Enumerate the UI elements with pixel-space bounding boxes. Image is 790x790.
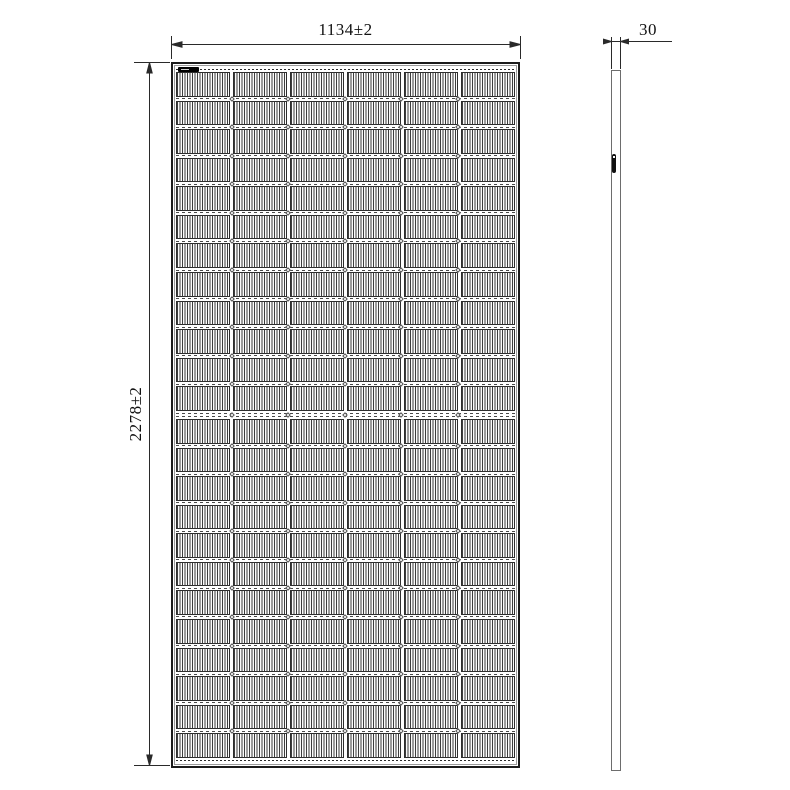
solar-cell	[290, 562, 344, 587]
ribbon-node	[229, 728, 235, 734]
cell-row	[176, 101, 515, 126]
ribbon-node	[229, 586, 235, 592]
ribbon-node	[399, 267, 405, 273]
solar-cell	[461, 676, 515, 701]
solar-cell	[347, 533, 401, 558]
ribbon-node	[455, 153, 461, 159]
ribbon-node	[342, 586, 348, 592]
solar-cell	[404, 386, 458, 411]
solar-cell	[461, 648, 515, 673]
solar-cell	[290, 448, 344, 473]
ribbon-node	[455, 96, 461, 102]
solar-cell	[290, 301, 344, 326]
solar-cell	[176, 648, 230, 673]
ribbon-node	[399, 700, 405, 706]
ribbon-node	[286, 728, 292, 734]
solar-cell	[290, 386, 344, 411]
solar-cell	[347, 186, 401, 211]
ribbon-node	[455, 181, 461, 187]
ribbon-node	[286, 267, 292, 273]
cell-row	[176, 158, 515, 183]
ribbon-node	[399, 153, 405, 159]
solar-cell	[233, 243, 287, 268]
ribbon-node	[455, 557, 461, 563]
ribbon-node	[286, 412, 292, 418]
solar-cell	[404, 301, 458, 326]
ribbon-node	[286, 353, 292, 359]
solar-cell	[290, 619, 344, 644]
solar-cell	[176, 272, 230, 297]
ribbon-node	[342, 557, 348, 563]
solar-cell	[176, 215, 230, 240]
solar-cell	[461, 590, 515, 615]
solar-cell	[347, 619, 401, 644]
solar-cell	[461, 101, 515, 126]
ribbon-node	[342, 210, 348, 216]
solar-cell	[461, 419, 515, 444]
ribbon-node	[286, 671, 292, 677]
thickness-dimension-label: 30	[628, 20, 668, 40]
solar-cell	[176, 301, 230, 326]
solar-cell	[176, 129, 230, 154]
cell-row-gap	[176, 382, 515, 386]
ribbon-node	[455, 528, 461, 534]
solar-cell	[404, 476, 458, 501]
solar-cell	[176, 505, 230, 530]
solar-cell	[404, 648, 458, 673]
cell-row	[176, 243, 515, 268]
solar-cell	[461, 533, 515, 558]
ribbon-node	[399, 728, 405, 734]
ribbon-node	[229, 353, 235, 359]
cell-row	[176, 386, 515, 411]
solar-cell	[347, 386, 401, 411]
solar-cell	[347, 448, 401, 473]
cell-row-gap	[176, 615, 515, 619]
ribbon-node	[342, 614, 348, 620]
solar-cell	[290, 329, 344, 354]
ribbon-node	[399, 557, 405, 563]
solar-cell	[404, 272, 458, 297]
ribbon-node	[455, 267, 461, 273]
solar-cell	[290, 158, 344, 183]
solar-cell	[176, 158, 230, 183]
cell-row-gap	[176, 558, 515, 562]
cell-row-gap	[176, 354, 515, 358]
solar-cell	[233, 301, 287, 326]
ribbon-node	[229, 96, 235, 102]
ribbon-node	[342, 296, 348, 302]
solar-cell	[461, 72, 515, 97]
solar-cell	[290, 186, 344, 211]
cell-row	[176, 448, 515, 473]
solar-cell	[233, 533, 287, 558]
ribbon-node	[455, 728, 461, 734]
ribbon-node	[455, 471, 461, 477]
ribbon-node	[342, 443, 348, 449]
ribbon-node	[229, 239, 235, 245]
solar-cell	[404, 72, 458, 97]
serial-barcode-label	[178, 67, 199, 72]
solar-cell	[290, 676, 344, 701]
cell-row	[176, 72, 515, 97]
technical-drawing-canvas: 1134±2 2278±2 30	[0, 0, 790, 790]
solar-cell	[233, 448, 287, 473]
ribbon-node	[399, 181, 405, 187]
ribbon-node	[286, 471, 292, 477]
solar-cell	[404, 101, 458, 126]
ribbon-node	[399, 586, 405, 592]
ribbon-node	[342, 353, 348, 359]
solar-cell	[233, 386, 287, 411]
cell-row	[176, 648, 515, 673]
ribbon-node	[455, 382, 461, 388]
ribbon-node	[342, 153, 348, 159]
bottom-busbar-strip	[176, 758, 515, 763]
top-busbar-strip	[176, 67, 515, 72]
solar-cell	[176, 676, 230, 701]
ribbon-node	[286, 210, 292, 216]
ribbon-node	[229, 324, 235, 330]
cell-row-gap	[176, 586, 515, 590]
ribbon-node	[286, 643, 292, 649]
ribbon-node	[229, 443, 235, 449]
cell-row-gap	[176, 644, 515, 648]
ribbon-node	[229, 153, 235, 159]
solar-cell	[404, 329, 458, 354]
ribbon-node	[399, 528, 405, 534]
solar-cell	[233, 272, 287, 297]
solar-cell	[347, 272, 401, 297]
ribbon-node	[286, 296, 292, 302]
ribbon-node	[455, 239, 461, 245]
solar-cell	[461, 505, 515, 530]
solar-cell	[233, 619, 287, 644]
solar-cell	[233, 101, 287, 126]
cell-row	[176, 419, 515, 444]
solar-cell	[290, 215, 344, 240]
solar-cell	[290, 590, 344, 615]
solar-cell	[176, 476, 230, 501]
junction-box-mark	[612, 154, 616, 173]
solar-cell	[176, 533, 230, 558]
solar-cell	[290, 533, 344, 558]
ribbon-node	[286, 614, 292, 620]
solar-cell	[290, 476, 344, 501]
solar-cell	[347, 158, 401, 183]
ribbon-node	[399, 412, 405, 418]
solar-cell	[404, 158, 458, 183]
solar-cell	[347, 590, 401, 615]
ribbon-node	[399, 671, 405, 677]
center-row-gap	[176, 411, 515, 419]
ribbon-node	[399, 324, 405, 330]
solar-cell	[233, 590, 287, 615]
cell-row-gap	[176, 125, 515, 129]
ribbon-node	[399, 614, 405, 620]
solar-cell	[290, 705, 344, 730]
cell-row	[176, 562, 515, 587]
ribbon-node	[286, 239, 292, 245]
solar-cell	[233, 129, 287, 154]
ribbon-node	[229, 643, 235, 649]
ribbon-node	[286, 153, 292, 159]
cell-row-gap	[176, 729, 515, 733]
ribbon-node	[455, 296, 461, 302]
solar-cell	[290, 72, 344, 97]
solar-cell	[347, 301, 401, 326]
solar-cell	[347, 358, 401, 383]
ribbon-node	[455, 614, 461, 620]
cell-grid	[176, 72, 515, 758]
solar-cell	[404, 590, 458, 615]
ribbon-node	[399, 443, 405, 449]
cell-row-gap	[176, 239, 515, 243]
ribbon-node	[229, 267, 235, 273]
solar-cell	[347, 476, 401, 501]
ribbon-node	[342, 382, 348, 388]
solar-cell	[347, 733, 401, 758]
solar-cell	[404, 358, 458, 383]
solar-cell	[404, 705, 458, 730]
solar-cell	[176, 386, 230, 411]
ribbon-node	[229, 296, 235, 302]
solar-cell	[233, 329, 287, 354]
ribbon-node	[342, 96, 348, 102]
solar-cell	[347, 648, 401, 673]
solar-cell	[461, 733, 515, 758]
ribbon-node	[399, 296, 405, 302]
solar-cell	[404, 243, 458, 268]
solar-cell	[233, 505, 287, 530]
solar-cell	[461, 358, 515, 383]
ribbon-node	[342, 412, 348, 418]
solar-cell	[347, 676, 401, 701]
cell-row	[176, 505, 515, 530]
solar-cell	[290, 358, 344, 383]
ribbon-node	[286, 586, 292, 592]
solar-cell	[176, 562, 230, 587]
ribbon-node	[455, 412, 461, 418]
cell-row-gap	[176, 529, 515, 533]
ribbon-node	[286, 557, 292, 563]
ribbon-node	[229, 471, 235, 477]
ribbon-node	[342, 500, 348, 506]
ribbon-node	[342, 700, 348, 706]
cell-row	[176, 476, 515, 501]
ribbon-node	[342, 728, 348, 734]
solar-cell	[404, 619, 458, 644]
solar-cell	[347, 72, 401, 97]
solar-cell	[347, 129, 401, 154]
ribbon-node	[229, 500, 235, 506]
ribbon-node	[286, 382, 292, 388]
solar-cell	[233, 158, 287, 183]
cell-row	[176, 215, 515, 240]
solar-cell	[176, 733, 230, 758]
solar-cell	[233, 648, 287, 673]
solar-cell	[347, 419, 401, 444]
cell-row	[176, 358, 515, 383]
ribbon-node	[455, 700, 461, 706]
ribbon-node	[342, 324, 348, 330]
solar-cell	[233, 419, 287, 444]
solar-cell	[404, 733, 458, 758]
solar-cell	[176, 619, 230, 644]
solar-cell	[404, 533, 458, 558]
ribbon-node	[342, 528, 348, 534]
cell-row-gap	[176, 501, 515, 505]
ribbon-node	[229, 210, 235, 216]
solar-cell	[176, 358, 230, 383]
solar-cell	[290, 648, 344, 673]
cell-row-gap	[176, 472, 515, 476]
cell-row	[176, 329, 515, 354]
solar-cell	[461, 158, 515, 183]
ribbon-node	[286, 443, 292, 449]
ribbon-node	[229, 557, 235, 563]
cell-row	[176, 590, 515, 615]
solar-cell	[461, 619, 515, 644]
solar-cell	[290, 129, 344, 154]
solar-cell	[404, 676, 458, 701]
ribbon-node	[399, 210, 405, 216]
cell-row	[176, 129, 515, 154]
cell-row	[176, 619, 515, 644]
solar-cell	[404, 505, 458, 530]
ribbon-node	[399, 643, 405, 649]
ribbon-node	[342, 239, 348, 245]
ribbon-node	[286, 528, 292, 534]
cell-row-gap	[176, 444, 515, 448]
solar-cell	[404, 215, 458, 240]
cell-row	[176, 186, 515, 211]
solar-cell	[461, 448, 515, 473]
ribbon-node	[455, 353, 461, 359]
solar-cell	[233, 72, 287, 97]
ribbon-node	[399, 124, 405, 130]
cell-row-gap	[176, 211, 515, 215]
solar-cell	[404, 419, 458, 444]
solar-cell	[233, 733, 287, 758]
solar-cell	[461, 129, 515, 154]
ribbon-node	[399, 96, 405, 102]
ribbon-node	[229, 671, 235, 677]
ribbon-node	[399, 382, 405, 388]
ribbon-node	[399, 471, 405, 477]
ribbon-node	[342, 124, 348, 130]
solar-cell	[461, 272, 515, 297]
solar-cell	[461, 186, 515, 211]
height-dimension-label: 2278±2	[126, 387, 146, 442]
ribbon-node	[342, 471, 348, 477]
solar-cell	[461, 243, 515, 268]
solar-cell	[233, 358, 287, 383]
solar-cell	[404, 186, 458, 211]
ribbon-node	[455, 210, 461, 216]
ribbon-node	[229, 124, 235, 130]
solar-cell	[347, 562, 401, 587]
ribbon-node	[455, 643, 461, 649]
cell-row-gap	[176, 297, 515, 301]
solar-cell	[176, 243, 230, 268]
solar-cell	[176, 329, 230, 354]
cell-row-gap	[176, 325, 515, 329]
solar-cell	[176, 448, 230, 473]
cell-row-gap	[176, 182, 515, 186]
solar-cell	[461, 301, 515, 326]
solar-panel-front-view	[171, 62, 520, 768]
solar-cell	[404, 562, 458, 587]
width-dimension-label: 1134±2	[171, 20, 520, 40]
solar-cell	[233, 676, 287, 701]
ribbon-node	[455, 324, 461, 330]
solar-cell	[347, 329, 401, 354]
solar-cell	[176, 101, 230, 126]
solar-cell	[290, 243, 344, 268]
solar-cell	[404, 448, 458, 473]
solar-cell	[290, 505, 344, 530]
solar-cell	[233, 476, 287, 501]
ribbon-node	[229, 181, 235, 187]
solar-cell	[176, 705, 230, 730]
ribbon-node	[399, 239, 405, 245]
solar-cell	[176, 590, 230, 615]
cell-row	[176, 301, 515, 326]
solar-cell	[233, 562, 287, 587]
ribbon-node	[455, 124, 461, 130]
ribbon-node	[229, 614, 235, 620]
cell-field	[176, 67, 515, 763]
ribbon-node	[229, 528, 235, 534]
ribbon-node	[455, 443, 461, 449]
ribbon-node	[342, 671, 348, 677]
solar-cell	[176, 72, 230, 97]
ribbon-node	[286, 181, 292, 187]
solar-cell	[347, 243, 401, 268]
solar-cell	[347, 101, 401, 126]
solar-cell	[176, 186, 230, 211]
cell-row-gap	[176, 268, 515, 272]
ribbon-node	[455, 671, 461, 677]
ribbon-node	[286, 500, 292, 506]
solar-cell	[290, 419, 344, 444]
solar-panel-side-view	[611, 70, 621, 771]
cell-row-gap	[176, 154, 515, 158]
cell-row-gap	[176, 701, 515, 705]
solar-cell	[233, 215, 287, 240]
ribbon-node	[229, 700, 235, 706]
ribbon-node	[455, 500, 461, 506]
solar-cell	[290, 101, 344, 126]
solar-cell	[404, 129, 458, 154]
solar-cell	[347, 705, 401, 730]
cell-row	[176, 705, 515, 730]
ribbon-node	[286, 124, 292, 130]
solar-cell	[176, 419, 230, 444]
cell-row	[176, 533, 515, 558]
ribbon-node	[229, 382, 235, 388]
ribbon-node	[342, 181, 348, 187]
solar-cell	[233, 186, 287, 211]
solar-cell	[461, 329, 515, 354]
solar-cell	[461, 215, 515, 240]
ribbon-node	[286, 700, 292, 706]
ribbon-node	[229, 412, 235, 418]
solar-cell	[461, 562, 515, 587]
cell-row-gap	[176, 672, 515, 676]
ribbon-node	[455, 586, 461, 592]
